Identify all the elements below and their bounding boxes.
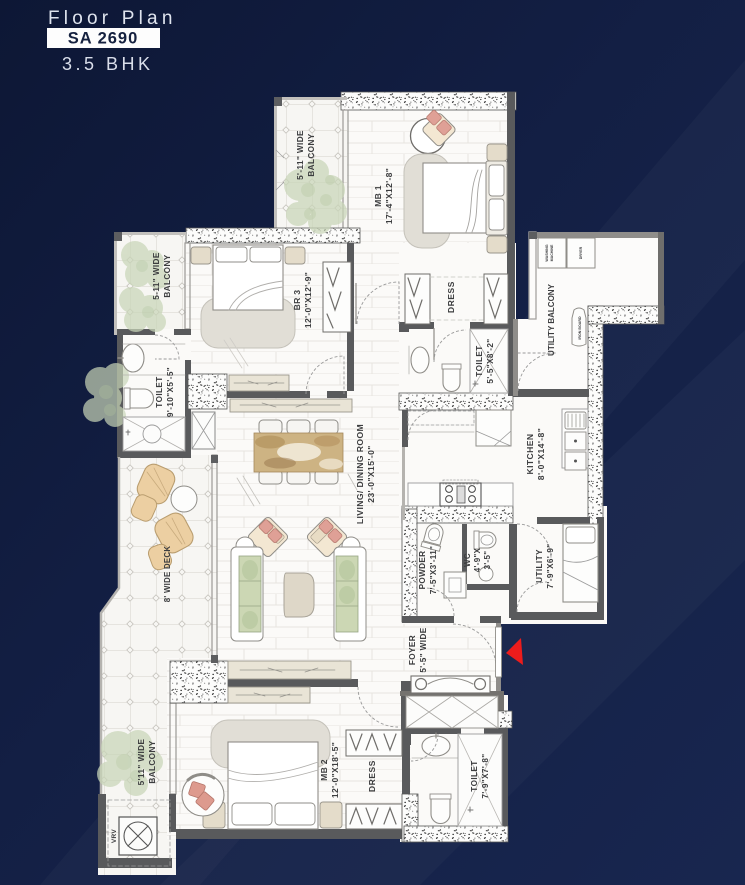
svg-text:4'-9"X: 4'-9"X bbox=[473, 547, 482, 572]
svg-text:UTILITY BALCONY: UTILITY BALCONY bbox=[547, 283, 556, 356]
svg-text:23'-0"X15'-0": 23'-0"X15'-0" bbox=[366, 445, 376, 503]
svg-text:KITCHEN: KITCHEN bbox=[525, 434, 535, 475]
svg-text:12'-0"X12'-9": 12'-0"X12'-9" bbox=[303, 272, 313, 328]
svg-text:SA 2690: SA 2690 bbox=[68, 30, 139, 48]
svg-text:7'-5"X3'-11": 7'-5"X3'-11" bbox=[429, 546, 438, 595]
svg-text:WASHING: WASHING bbox=[545, 244, 549, 261]
svg-text:8' WIDE DECK: 8' WIDE DECK bbox=[163, 546, 172, 603]
svg-text:BR 3: BR 3 bbox=[292, 290, 302, 311]
svg-text:17'-4"X12'-8": 17'-4"X12'-8" bbox=[384, 168, 394, 224]
svg-text:12'-0"X18'-5": 12'-0"X18'-5" bbox=[330, 742, 340, 798]
svg-text:3'-5": 3'-5" bbox=[483, 551, 492, 570]
svg-text:8'-0"X14'-8": 8'-0"X14'-8" bbox=[536, 428, 546, 480]
svg-text:5-11" WIDE: 5-11" WIDE bbox=[152, 252, 161, 300]
svg-text:DRESS: DRESS bbox=[367, 760, 377, 792]
svg-text:TOILET: TOILET bbox=[475, 345, 484, 376]
svg-text:5'-5"X8'-2": 5'-5"X8'-2" bbox=[486, 338, 495, 383]
svg-text:5'-11" WIDE: 5'-11" WIDE bbox=[296, 130, 305, 180]
svg-text:7'-9"X6'-9": 7'-9"X6'-9" bbox=[546, 543, 555, 588]
svg-text:MACHINE: MACHINE bbox=[550, 244, 554, 261]
svg-text:5'11" WIDE: 5'11" WIDE bbox=[137, 739, 146, 786]
svg-text:IRON BOARD: IRON BOARD bbox=[578, 316, 582, 340]
svg-text:BALCONY: BALCONY bbox=[307, 133, 316, 176]
svg-text:LIVING/ DINING ROOM: LIVING/ DINING ROOM bbox=[355, 424, 365, 524]
svg-text:UTILITY: UTILITY bbox=[535, 549, 544, 583]
svg-text:MB 2: MB 2 bbox=[319, 759, 329, 781]
svg-text:BALCONY: BALCONY bbox=[148, 740, 157, 783]
svg-text:5'-5" WIDE: 5'-5" WIDE bbox=[419, 627, 428, 672]
svg-text:9'-10"X5'-5": 9'-10"X5'-5" bbox=[166, 367, 175, 417]
svg-text:FOYER: FOYER bbox=[408, 635, 417, 665]
svg-text:7'-9"X7'-8": 7'-9"X7'-8" bbox=[481, 753, 490, 798]
svg-text:Floor Plan: Floor Plan bbox=[48, 8, 177, 29]
svg-text:POWDER: POWDER bbox=[418, 551, 427, 590]
svg-text:BALCONY: BALCONY bbox=[163, 254, 172, 297]
svg-text:DRYER: DRYER bbox=[579, 246, 583, 259]
svg-text:DRESS: DRESS bbox=[446, 281, 456, 313]
svg-text:WC: WC bbox=[463, 553, 472, 567]
svg-text:TOILET: TOILET bbox=[470, 760, 479, 791]
svg-text:MB 1: MB 1 bbox=[373, 185, 383, 207]
svg-text:VRV: VRV bbox=[111, 829, 118, 844]
svg-text:TOILET: TOILET bbox=[155, 376, 164, 407]
svg-text:3.5 BHK: 3.5 BHK bbox=[62, 54, 154, 74]
